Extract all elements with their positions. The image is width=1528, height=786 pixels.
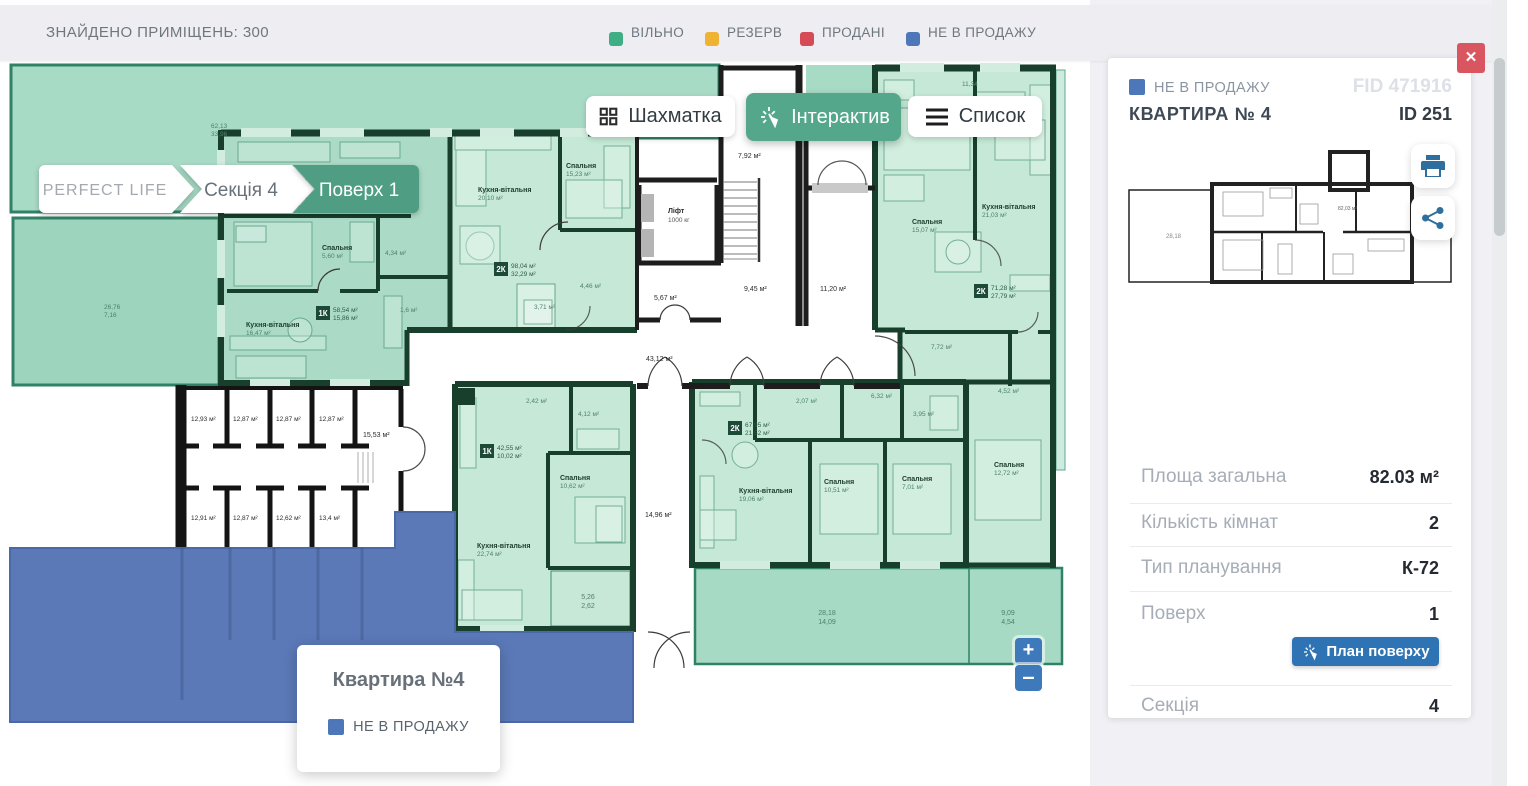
svg-text:82,03 м²: 82,03 м² bbox=[1338, 206, 1357, 212]
svg-text:7,16: 7,16 bbox=[104, 312, 117, 319]
svg-text:Кухня-вітальня: Кухня-вітальня bbox=[739, 487, 792, 495]
svg-text:12,91 м²: 12,91 м² bbox=[191, 515, 217, 522]
svg-text:12,93 м²: 12,93 м² bbox=[191, 416, 217, 423]
svg-text:15,53 м²: 15,53 м² bbox=[363, 432, 390, 439]
svg-text:15,23 м²: 15,23 м² bbox=[566, 171, 592, 178]
svg-text:6,32 м²: 6,32 м² bbox=[871, 393, 893, 400]
svg-text:62,13: 62,13 bbox=[211, 123, 228, 130]
svg-text:5,60 м²: 5,60 м² bbox=[322, 253, 344, 260]
svg-text:2К: 2К bbox=[976, 287, 985, 296]
svg-text:67,95 м²: 67,95 м² bbox=[745, 422, 771, 429]
svg-text:20,10 м²: 20,10 м² bbox=[478, 195, 504, 202]
svg-text:PERFECT LIFE: PERFECT LIFE bbox=[43, 182, 168, 199]
svg-text:16,47 м²: 16,47 м² bbox=[246, 330, 272, 337]
svg-text:4,34 м²: 4,34 м² bbox=[385, 250, 407, 257]
svg-text:5,67 м²: 5,67 м² bbox=[654, 295, 677, 302]
svg-text:11,34: 11,34 bbox=[962, 81, 978, 88]
svg-text:Поверх 1: Поверх 1 bbox=[319, 180, 399, 201]
svg-text:10,62 м²: 10,62 м² bbox=[560, 483, 586, 490]
svg-text:4,54: 4,54 bbox=[1001, 619, 1015, 626]
svg-text:12,87 м²: 12,87 м² bbox=[319, 416, 345, 423]
svg-text:Кухня-вітальня: Кухня-вітальня bbox=[478, 186, 531, 194]
svg-text:1000 кг: 1000 кг bbox=[668, 217, 690, 224]
svg-text:2,62: 2,62 bbox=[581, 603, 595, 610]
svg-text:1К: 1К bbox=[482, 447, 491, 456]
svg-text:2К: 2К bbox=[730, 424, 739, 433]
svg-text:12,87 м²: 12,87 м² bbox=[233, 416, 259, 423]
svg-text:3,71 м²: 3,71 м² bbox=[534, 304, 556, 311]
svg-text:4,12 м²: 4,12 м² bbox=[578, 411, 600, 418]
svg-text:7,72 м²: 7,72 м² bbox=[931, 344, 953, 351]
svg-text:Спальня: Спальня bbox=[566, 163, 596, 170]
svg-text:Спальня: Спальня bbox=[994, 462, 1024, 469]
svg-text:4,46 м²: 4,46 м² bbox=[580, 283, 602, 290]
svg-text:1К: 1К bbox=[318, 309, 327, 318]
svg-text:1,6 м²: 1,6 м² bbox=[400, 307, 418, 314]
svg-text:42,55 м²: 42,55 м² bbox=[497, 445, 523, 452]
svg-text:Спальня: Спальня bbox=[560, 475, 590, 482]
svg-text:14,96 м²: 14,96 м² bbox=[645, 512, 672, 519]
svg-text:Кухня-вітальня: Кухня-вітальня bbox=[477, 542, 530, 550]
svg-text:9,45 м²: 9,45 м² bbox=[744, 286, 767, 293]
svg-text:71,28 м²: 71,28 м² bbox=[991, 285, 1017, 292]
svg-text:21,52 м²: 21,52 м² bbox=[745, 430, 771, 437]
svg-text:Кухня-вітальня: Кухня-вітальня bbox=[246, 321, 299, 329]
svg-text:43,12 м²: 43,12 м² bbox=[646, 356, 673, 363]
svg-text:7,92 м²: 7,92 м² bbox=[738, 153, 761, 160]
svg-text:9,09: 9,09 bbox=[1001, 610, 1015, 617]
svg-text:5,26: 5,26 bbox=[581, 594, 595, 601]
svg-text:2К: 2К bbox=[496, 265, 505, 274]
svg-text:Спальня: Спальня bbox=[912, 219, 942, 226]
svg-text:19,06 м²: 19,06 м² bbox=[739, 496, 765, 503]
svg-text:7,01 м²: 7,01 м² bbox=[902, 484, 924, 491]
svg-text:10,51 м²: 10,51 м² bbox=[824, 487, 850, 494]
svg-text:10,02 м²: 10,02 м² bbox=[497, 453, 523, 460]
svg-text:27,79 м²: 27,79 м² bbox=[991, 293, 1017, 300]
svg-text:11,20 м²: 11,20 м² bbox=[820, 286, 847, 293]
svg-text:15,86 м²: 15,86 м² bbox=[333, 315, 359, 322]
svg-text:4,52 м²: 4,52 м² bbox=[998, 388, 1020, 395]
svg-text:98,04 м²: 98,04 м² bbox=[511, 263, 537, 270]
svg-text:58,54 м²: 58,54 м² bbox=[333, 307, 359, 314]
svg-text:3,95 м²: 3,95 м² bbox=[913, 411, 935, 418]
svg-text:Спальня: Спальня bbox=[902, 476, 932, 483]
svg-text:12,62 м²: 12,62 м² bbox=[276, 515, 302, 522]
svg-text:12,72 м²: 12,72 м² bbox=[994, 470, 1020, 477]
svg-text:15,07 м²: 15,07 м² bbox=[912, 227, 938, 234]
svg-text:2,07 м²: 2,07 м² bbox=[796, 398, 818, 405]
svg-text:26,76: 26,76 bbox=[104, 304, 121, 311]
svg-text:28,18: 28,18 bbox=[818, 610, 836, 617]
svg-text:Спальня: Спальня bbox=[322, 245, 352, 252]
svg-text:Ліфт: Ліфт bbox=[668, 207, 685, 215]
svg-text:33,96: 33,96 bbox=[211, 131, 228, 138]
svg-text:Спальня: Спальня bbox=[824, 479, 854, 486]
svg-text:21,03 м²: 21,03 м² bbox=[982, 212, 1008, 219]
svg-text:14,09: 14,09 bbox=[818, 619, 836, 626]
svg-text:Секція 4: Секція 4 bbox=[204, 180, 278, 201]
svg-text:22,74 м²: 22,74 м² bbox=[477, 551, 503, 558]
svg-text:2,42 м²: 2,42 м² bbox=[526, 398, 548, 405]
svg-text:13,4 м²: 13,4 м² bbox=[319, 515, 341, 522]
svg-text:12,87 м²: 12,87 м² bbox=[233, 515, 259, 522]
svg-text:28,18: 28,18 bbox=[1166, 234, 1182, 240]
svg-text:Кухня-вітальня: Кухня-вітальня bbox=[982, 203, 1035, 211]
svg-text:32,29 м²: 32,29 м² bbox=[511, 271, 537, 278]
svg-text:12,87 м²: 12,87 м² bbox=[276, 416, 302, 423]
